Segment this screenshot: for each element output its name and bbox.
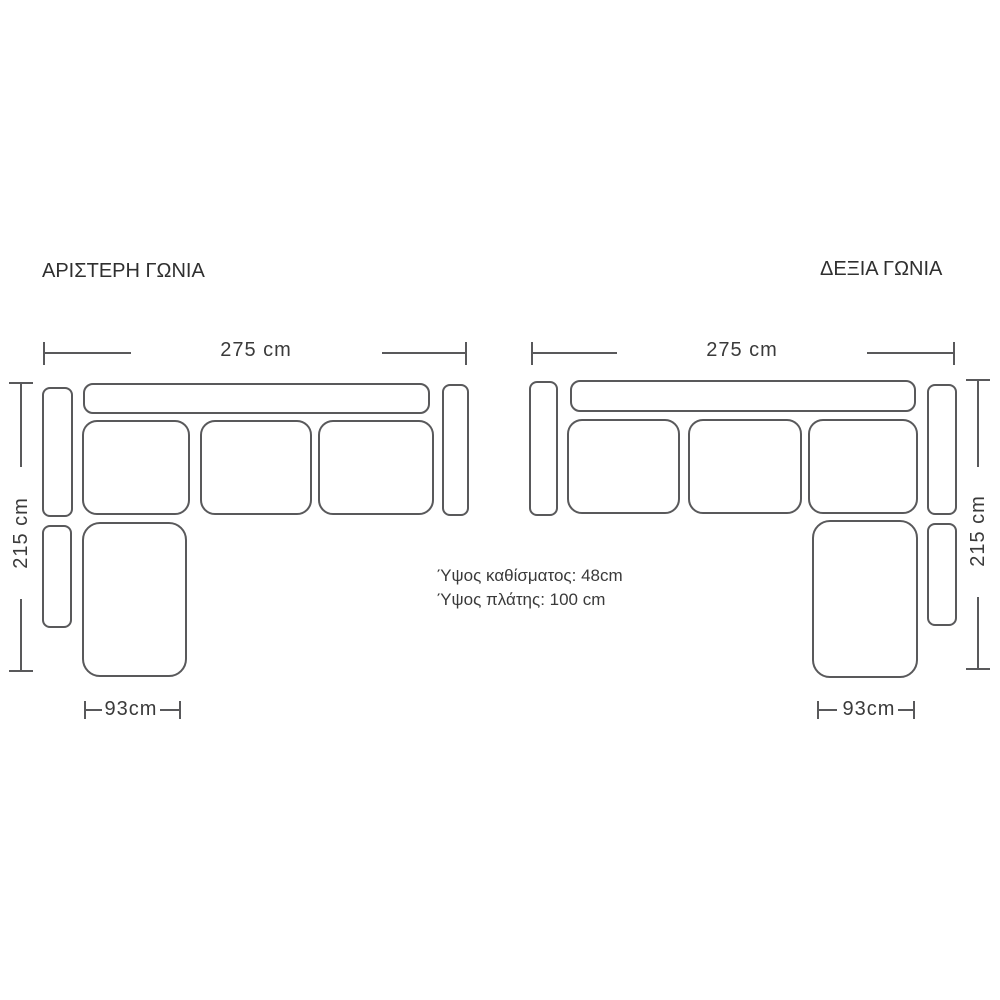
right-width-dim-tick-right: [953, 342, 955, 365]
right-chaise-dim-label: 93cm: [843, 698, 896, 720]
right-sofa-armrest-upper: [927, 384, 957, 515]
right-diagram-title: ΔΕΞΙΑ ΓΩΝΙΑ: [820, 257, 942, 281]
left-corner-diagram: ΑΡΙΣΤΕΡΗ ΓΩΝΙΑ 275 cm 215 cm 93cm: [0, 0, 1000, 1000]
left-depth-dim-tick-top: [9, 382, 33, 384]
right-sofa-cushion-1: [567, 419, 680, 514]
right-chaise-dim-tick-right: [913, 701, 915, 719]
left-chaise-dim-tick-left: [84, 701, 86, 719]
left-sofa-armrest-right: [442, 384, 469, 516]
right-corner-diagram: ΔΕΞΙΑ ΓΩΝΙΑ 275 cm 215 cm 93cm: [0, 0, 1000, 1000]
right-sofa-chaise: [812, 520, 918, 678]
left-width-dim-line-right: [382, 352, 466, 354]
left-width-dim-line-left: [45, 352, 131, 354]
right-depth-dim-line-bottom: [977, 597, 979, 669]
left-chaise-dim-line-left: [86, 709, 102, 711]
right-sofa-armrest-left: [529, 381, 558, 516]
right-depth-dim-label: 215 cm: [967, 495, 989, 567]
left-chaise-dim-line-right: [160, 709, 180, 711]
right-sofa-backrest: [570, 380, 916, 412]
right-chaise-dim-line-left: [819, 709, 837, 711]
back-height-note: Ύψος πλάτης: 100 cm: [437, 588, 605, 611]
left-sofa-armrest-lower: [42, 525, 72, 628]
left-sofa-cushion-2: [200, 420, 312, 515]
left-chaise-dim-tick-right: [179, 701, 181, 719]
right-chaise-dim-tick-left: [817, 701, 819, 719]
left-depth-dim-line-bottom: [20, 599, 22, 671]
left-diagram-title: ΑΡΙΣΤΕΡΗ ΓΩΝΙΑ: [42, 259, 205, 283]
right-sofa-armrest-lower: [927, 523, 957, 626]
left-depth-dim-tick-bottom: [9, 670, 33, 672]
right-chaise-dim-line-right: [898, 709, 914, 711]
left-depth-dim-label: 215 cm: [10, 497, 32, 569]
left-width-dim-tick-left: [43, 342, 45, 365]
right-width-dim-tick-left: [531, 342, 533, 365]
seat-height-note: Ύψος καθίσματος: 48cm: [437, 564, 623, 587]
right-width-dim-label: 275 cm: [706, 339, 778, 361]
right-depth-dim-tick-top: [966, 379, 990, 381]
right-width-dim-line-left: [533, 352, 617, 354]
right-depth-dim-line-top: [977, 381, 979, 467]
left-width-dim-tick-right: [465, 342, 467, 365]
left-chaise-dim-label: 93cm: [105, 698, 158, 720]
right-depth-dim-tick-bottom: [966, 668, 990, 670]
right-width-dim-line-right: [867, 352, 954, 354]
left-depth-dim-line-top: [20, 384, 22, 467]
right-sofa-cushion-2: [688, 419, 802, 514]
left-sofa-cushion-3: [318, 420, 434, 515]
left-sofa-cushion-1: [82, 420, 190, 515]
right-sofa-cushion-3: [808, 419, 918, 514]
left-sofa-armrest-upper: [42, 387, 73, 517]
left-width-dim-label: 275 cm: [220, 339, 292, 361]
left-sofa-chaise: [82, 522, 187, 677]
left-sofa-backrest: [83, 383, 430, 414]
